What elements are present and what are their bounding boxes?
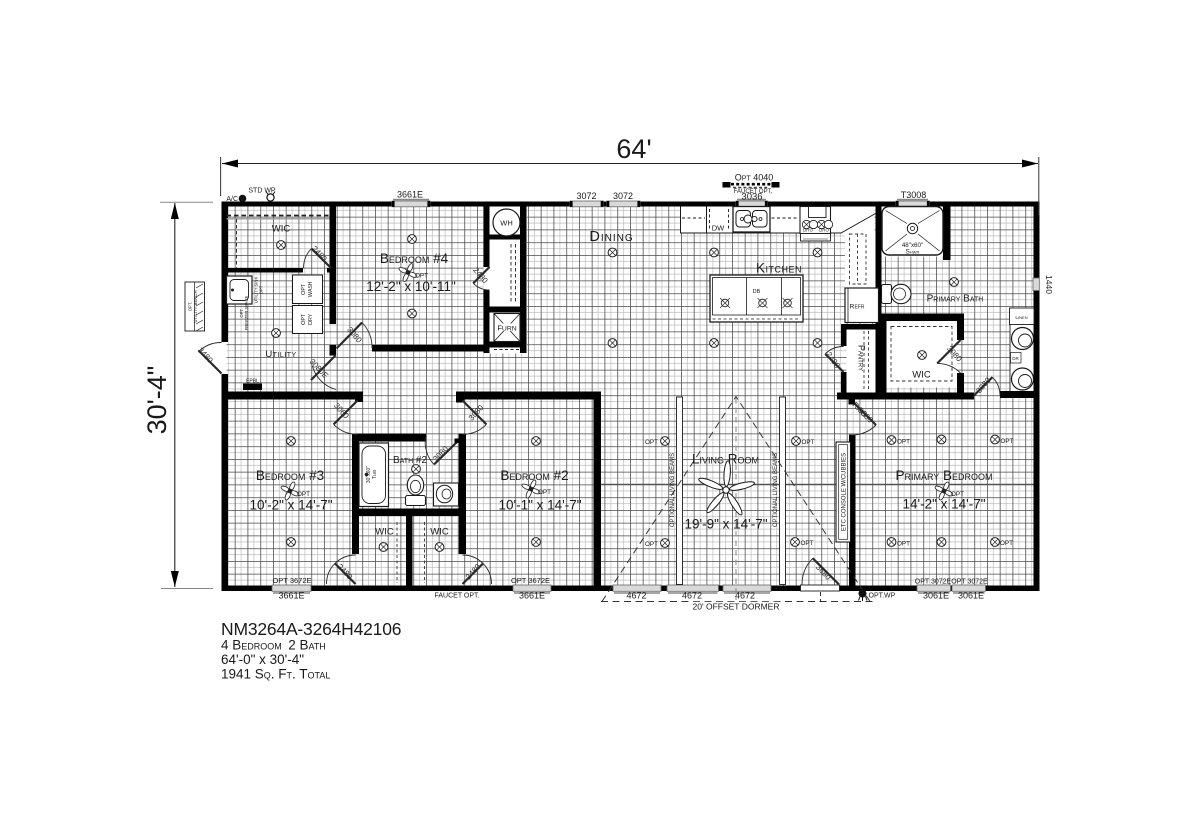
svg-text:OPT: OPT <box>301 284 307 295</box>
svg-text:T3008: T3008 <box>901 190 927 200</box>
svg-text:OPTIONAL LIVING BEAMS: OPTIONAL LIVING BEAMS <box>773 453 779 527</box>
svg-text:30'-4": 30'-4" <box>142 366 172 435</box>
svg-text:DW: DW <box>712 224 725 233</box>
svg-text:14'-2" x 14'-7": 14'-2" x 14'-7" <box>902 497 985 512</box>
svg-text:WH: WH <box>500 219 513 228</box>
svg-text:3072: 3072 <box>576 191 596 201</box>
svg-text:19'-9" x 14'-7": 19'-9" x 14'-7" <box>684 517 767 532</box>
svg-text:EPBL: EPBL <box>246 379 259 385</box>
svg-text:3072: 3072 <box>613 191 633 201</box>
svg-text:Refr: Refr <box>850 304 865 311</box>
svg-text:WIC: WIC <box>375 527 394 538</box>
svg-text:OPT 3672E: OPT 3672E <box>272 576 311 585</box>
svg-text:4672: 4672 <box>682 591 702 601</box>
svg-text:ETC CONSOLE W/CUBBIES: ETC CONSOLE W/CUBBIES <box>842 453 848 531</box>
svg-text:WIC: WIC <box>912 370 931 381</box>
svg-text:Pantry: Pantry <box>857 345 867 371</box>
svg-text:DRO: DRO <box>819 228 829 233</box>
svg-text:NM3264A-3264H42106: NM3264A-3264H42106 <box>221 619 401 639</box>
svg-text:4 Bedroom 2 Bath: 4 Bedroom 2 Bath <box>221 638 326 653</box>
svg-text:STD WP: STD WP <box>248 188 276 195</box>
svg-text:10'-1" x 14'-7": 10'-1" x 14'-7" <box>498 498 581 513</box>
svg-text:20' OFFSET DORMER: 20' OFFSET DORMER <box>693 602 780 612</box>
svg-text:OPT.WP: OPT.WP <box>869 593 896 600</box>
svg-text:Dining: Dining <box>589 229 633 245</box>
svg-text:Bedroom #4: Bedroom #4 <box>380 251 449 266</box>
svg-text:OPT: OPT <box>538 489 551 496</box>
svg-text:3661E: 3661E <box>397 190 423 200</box>
svg-text:FAUCET OPT,: FAUCET OPT, <box>734 189 773 195</box>
svg-text:OPT: OPT <box>645 439 658 446</box>
svg-text:A/C: A/C <box>226 196 238 203</box>
svg-text:OPT: OPT <box>897 439 910 446</box>
svg-text:OPT: OPT <box>645 541 658 548</box>
svg-text:OPT: OPT <box>1001 438 1014 445</box>
svg-text:3061E: 3061E <box>923 591 949 601</box>
svg-text:Living Room: Living Room <box>692 452 759 467</box>
svg-text:OPT: OPT <box>259 285 264 294</box>
svg-text:Shwr: Shwr <box>906 249 920 256</box>
svg-text:OPT 4040: OPT 4040 <box>735 173 774 183</box>
svg-text:Primary Bedroom: Primary Bedroom <box>895 468 992 483</box>
svg-text:WIC: WIC <box>272 224 291 235</box>
svg-text:DRO: DRO <box>803 228 813 233</box>
svg-text:Bath #2: Bath #2 <box>393 455 427 466</box>
svg-text:4672: 4672 <box>626 591 646 601</box>
svg-text:DRY: DRY <box>308 313 314 325</box>
svg-text:OPT.: OPT. <box>188 302 193 312</box>
svg-text:FAUCET OPT.: FAUCET OPT. <box>435 593 480 600</box>
svg-text:3061E: 3061E <box>958 591 984 601</box>
svg-text:3661E: 3661E <box>278 591 304 601</box>
svg-text:OPT: OPT <box>897 541 910 548</box>
svg-text:3661E: 3661E <box>519 591 545 601</box>
svg-text:Kitchen: Kitchen <box>756 261 802 276</box>
svg-text:Bedroom #3: Bedroom #3 <box>256 468 324 483</box>
svg-text:12'-2" x 10'-11": 12'-2" x 10'-11" <box>366 279 456 294</box>
svg-text:OPT: OPT <box>1000 540 1013 547</box>
svg-text:OPT 3072E: OPT 3072E <box>951 579 988 586</box>
svg-text:DR: DR <box>1012 356 1019 361</box>
svg-text:10'-2" x 14'-7": 10'-2" x 14'-7" <box>249 498 332 513</box>
svg-text:OPT: OPT <box>802 439 815 446</box>
svg-text:OPT 3672E: OPT 3672E <box>511 576 550 585</box>
svg-text:64'-0" x 30'-4": 64'-0" x 30'-4" <box>221 652 304 667</box>
svg-text:OPT: OPT <box>801 540 814 547</box>
svg-text:UTILITY BENCH: UTILITY BENCH <box>193 290 198 322</box>
svg-text:FURN: FURN <box>497 324 516 333</box>
svg-text:OPT: OPT <box>301 314 307 325</box>
svg-text:FREEZER SPACE: FREEZER SPACE <box>244 295 249 330</box>
svg-text:Primary Bath: Primary Bath <box>927 294 984 305</box>
svg-text:Utility: Utility <box>265 349 296 360</box>
svg-text:4672: 4672 <box>735 591 755 601</box>
svg-text:1440: 1440 <box>1044 275 1054 294</box>
svg-text:WIC: WIC <box>430 527 449 538</box>
svg-text:OPT 3072E: OPT 3072E <box>915 579 952 586</box>
svg-text:64': 64' <box>616 134 651 164</box>
svg-text:DB: DB <box>753 289 761 295</box>
svg-text:Bedroom #2: Bedroom #2 <box>500 468 568 483</box>
svg-text:1941 Sq. Ft. Total: 1941 Sq. Ft. Total <box>221 667 330 682</box>
svg-text:WASH: WASH <box>308 281 314 297</box>
